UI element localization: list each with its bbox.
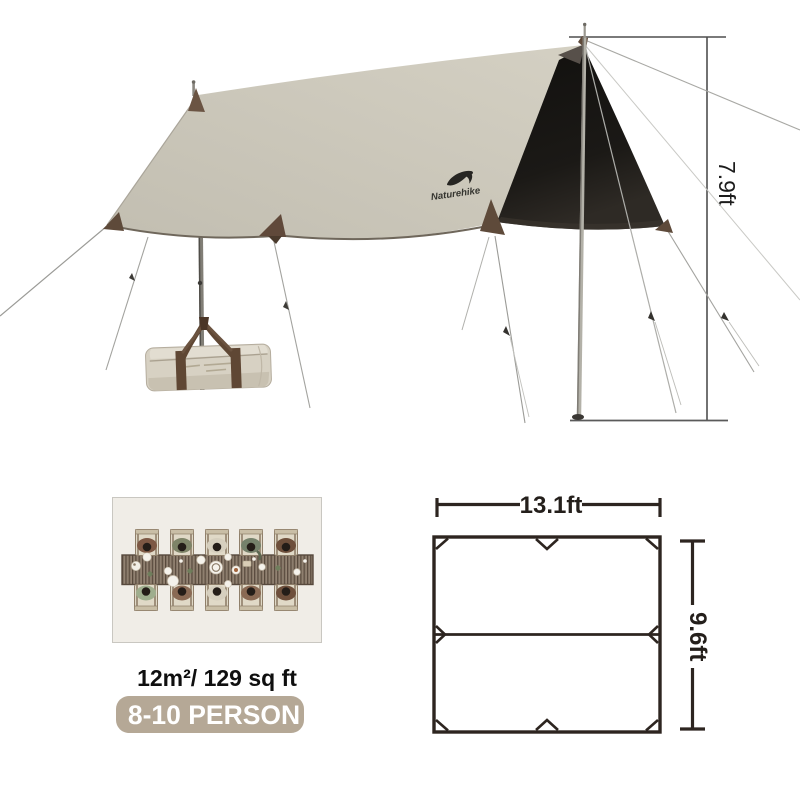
svg-text:9.6ft: 9.6ft [684, 612, 711, 661]
svg-text:7.9ft: 7.9ft [714, 161, 740, 206]
svg-text:8-10 PERSON: 8-10 PERSON [128, 700, 300, 730]
svg-text:13.1ft: 13.1ft [520, 492, 583, 519]
svg-text:12m²/ 129 sq ft: 12m²/ 129 sq ft [137, 665, 297, 691]
